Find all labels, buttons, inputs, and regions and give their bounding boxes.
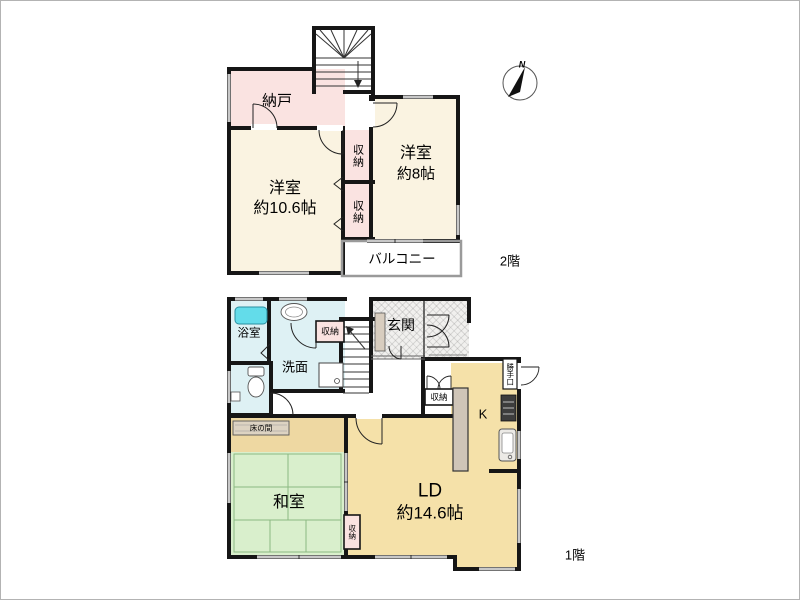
- entrance-porch: [425, 301, 469, 359]
- label-bathroom: 浴室: [238, 328, 261, 340]
- stairs-1f: [343, 326, 369, 393]
- label-living-dining-size: 約14.6帖: [396, 505, 463, 522]
- tokonoma-zone: [231, 418, 344, 452]
- label-japanese-room: 和室: [273, 495, 305, 511]
- label-tokonoma: 床の間: [250, 424, 273, 432]
- label-closet-lower: 収納: [352, 200, 363, 224]
- label-washroom: 洗面: [282, 361, 308, 374]
- compass-icon: [503, 66, 537, 100]
- room-toilet: [229, 363, 271, 415]
- label-ld-closet: 収納: [430, 393, 447, 402]
- floorplan-canvas: N 納戸 洋室 約10.6帖 収納 収納 洋室 約8帖 バルコニー 2階 浴室 …: [0, 0, 800, 600]
- label-hall-closet: 収納: [321, 328, 339, 337]
- label-washitsu-closet: 収納: [348, 525, 356, 540]
- label-western-small-name: 洋室: [400, 146, 432, 162]
- room-washroom: [269, 301, 345, 391]
- label-kitchen: K: [479, 408, 488, 421]
- room-living-dining-ext: [453, 555, 517, 567]
- label-balcony: バルコニー: [368, 252, 435, 266]
- label-floor1: 1階: [565, 549, 585, 562]
- compass-north-label: N: [519, 61, 526, 70]
- label-western-large-size: 約10.6帖: [253, 201, 316, 217]
- label-closet-upper: 収納: [352, 144, 363, 168]
- label-back-door: 勝手口: [506, 363, 514, 386]
- label-nando: 納戸: [262, 94, 292, 109]
- label-western-small-size: 約8帖: [397, 167, 435, 182]
- label-entrance: 玄関: [387, 318, 415, 332]
- label-living-dining-name: LD: [418, 482, 442, 501]
- label-western-large-name: 洋室: [269, 181, 301, 197]
- label-floor2: 2階: [500, 255, 520, 268]
